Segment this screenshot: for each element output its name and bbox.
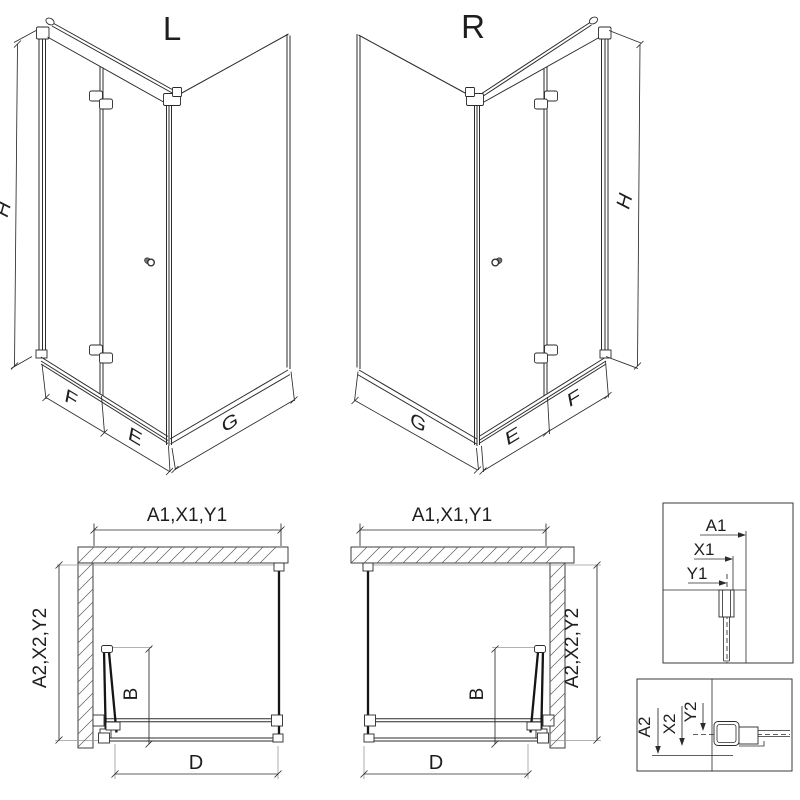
label-door-leaf-left: F xyxy=(63,385,79,412)
label-height-right: H xyxy=(613,189,637,213)
bar-end-cap xyxy=(45,17,56,27)
fold-apex-hinge xyxy=(102,646,113,653)
dim-depth-left: A2,X2,Y2 xyxy=(30,562,63,744)
view-title-right: R xyxy=(461,8,485,45)
a2-arrowhead xyxy=(655,746,661,754)
stabilizer-bar xyxy=(52,23,179,97)
glass-wall-bracket xyxy=(274,563,284,571)
profile-clamp xyxy=(739,727,758,744)
stabilizer-bar xyxy=(481,22,592,98)
stabilizer-bar-plan xyxy=(375,719,543,722)
bar-corner-bracket xyxy=(173,88,182,97)
technical-drawing-page: L H xyxy=(0,0,800,800)
dim-width-line xyxy=(94,524,281,547)
bar-end-cap xyxy=(588,16,599,26)
detail-label-y2: Y2 xyxy=(681,702,700,723)
detail-box-width: A1 X1 Y1 xyxy=(663,503,793,663)
side-glass-top-edge xyxy=(176,34,289,97)
label-depth-plan-right: A2,X2,Y2 xyxy=(562,608,583,688)
label-entry-plan-right: D xyxy=(429,752,443,774)
dim-side-right: G xyxy=(352,372,482,474)
wall-profile-section xyxy=(719,590,734,617)
glass-foot-bracket xyxy=(364,734,374,742)
bar-glass-bracket xyxy=(272,715,283,726)
wall-profile-top-bracket xyxy=(599,27,612,39)
x2-arrowhead xyxy=(679,738,685,746)
label-width-plan-left: A1,X1,Y1 xyxy=(147,505,227,526)
fold-hinge-bottom-b xyxy=(535,353,548,363)
wall-profile-left xyxy=(39,34,46,356)
side-wall xyxy=(78,563,93,748)
front-glass-top-edge xyxy=(480,37,601,105)
label-entry-plan-left: D xyxy=(189,752,203,774)
label-width-plan-right: A1,X1,Y1 xyxy=(412,505,492,526)
wall-profile-right xyxy=(602,34,609,356)
plan-view-left: A1,X1,Y1 A2,X2,Y2 B xyxy=(30,505,288,779)
detail-label-x1: X1 xyxy=(694,540,715,559)
door-guide-block xyxy=(106,722,120,730)
label-fold-plan-left: B xyxy=(121,688,142,701)
dim-front-left: F E xyxy=(42,364,173,475)
plan-view-right: A1,X1,Y1 A2,X2,Y2 B xyxy=(351,505,601,779)
detail-label-x2: X2 xyxy=(660,714,679,735)
fold-hinge-top-b xyxy=(100,99,113,109)
iso-view-left: L H xyxy=(0,10,298,475)
corner-post xyxy=(167,104,172,447)
glass-foot-bracket xyxy=(273,734,283,742)
detail-label-a1: A1 xyxy=(706,516,727,535)
dim-front-right: E F xyxy=(480,361,612,475)
dim-entry-right: D xyxy=(361,752,532,778)
front-threshold-line xyxy=(368,738,542,741)
dim-fold-right: B xyxy=(467,646,499,748)
view-title-left: L xyxy=(163,10,181,47)
y2-arrowhead xyxy=(700,723,706,731)
corner-post xyxy=(475,104,480,447)
label-side-panel-right: G xyxy=(408,408,427,437)
fold-hinge-top-b xyxy=(535,99,548,109)
detail-box-border xyxy=(663,503,793,663)
detail-label-y1: Y1 xyxy=(687,564,708,583)
door-knob xyxy=(148,259,155,266)
wall-foot-bracket xyxy=(99,733,110,743)
bar-wall-bracket xyxy=(93,715,104,726)
label-height-left: H xyxy=(0,197,15,221)
front-threshold-line xyxy=(105,738,279,741)
dim-entry-left: D xyxy=(112,752,282,778)
wall-profile-top-bracket xyxy=(37,27,50,39)
bar-wall-bracket xyxy=(543,715,554,726)
bottom-rail xyxy=(479,357,606,444)
dim-height-right: H xyxy=(606,31,644,370)
stabilizer-bar-plan xyxy=(104,719,272,722)
dim-side-left: G xyxy=(172,372,298,474)
door-knob xyxy=(492,259,499,266)
x1-arrowhead xyxy=(725,556,733,562)
side-glass-outer-edge xyxy=(287,34,290,369)
detail-label-a2: A2 xyxy=(635,717,654,738)
y1-arrowhead xyxy=(719,580,727,586)
label-fold-plan-right: B xyxy=(467,688,488,701)
label-door-leaf-right: F xyxy=(566,385,582,412)
side-glass-top-edge xyxy=(359,35,472,97)
fold-hinge-bottom-b xyxy=(100,353,113,363)
shower-enclosure-diagram: L H xyxy=(0,0,800,800)
fold-apex-hinge xyxy=(535,646,546,653)
label-depth-plan-left: A2,X2,Y2 xyxy=(30,608,51,688)
front-glass-top-edge xyxy=(48,37,169,105)
bar-corner-bracket xyxy=(466,88,475,97)
dim-depth-right: A2,X2,Y2 xyxy=(562,562,601,744)
wall-foot-bracket xyxy=(538,733,549,743)
bar-glass-bracket xyxy=(365,715,376,726)
dim-fold-left: B xyxy=(121,646,153,748)
a1-arrowhead xyxy=(738,532,746,538)
glass-wall-bracket xyxy=(363,563,373,571)
iso-view-right: R H xyxy=(352,8,644,475)
dim-width-line xyxy=(360,524,546,547)
detail-box-depth: A2 X2 Y2 xyxy=(635,679,792,771)
door-guide-block xyxy=(527,722,541,730)
side-glass-outer-edge xyxy=(357,34,360,369)
dim-height-left: H xyxy=(0,31,36,370)
wall-profile-foot xyxy=(600,350,611,358)
